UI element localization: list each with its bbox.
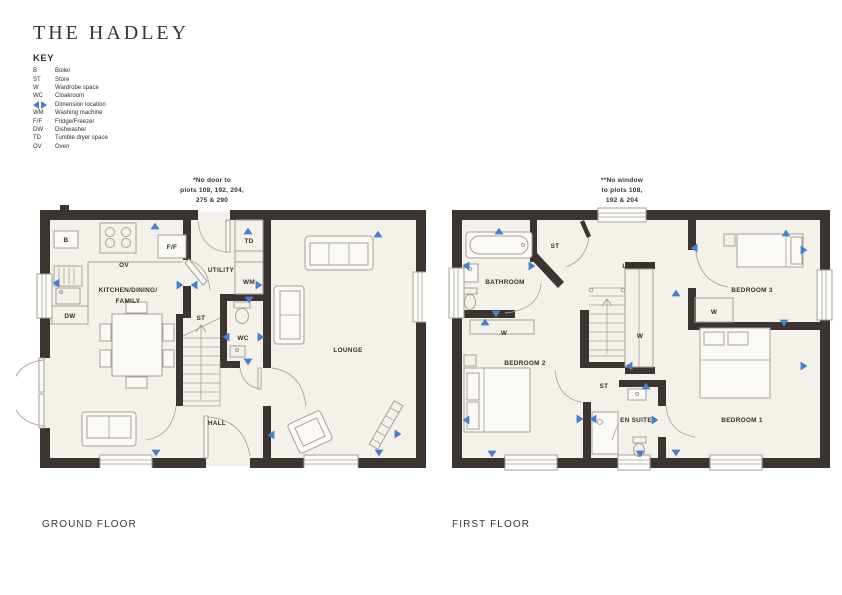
key-label: Washing machine bbox=[55, 110, 102, 116]
room-label-store: ST bbox=[197, 315, 206, 322]
key-abbr: WC bbox=[33, 93, 55, 99]
flue-stub bbox=[60, 205, 69, 210]
dimension-arrows-icon bbox=[33, 101, 55, 109]
key-abbr: OV bbox=[33, 144, 55, 150]
first-floor-plan: BATHROOM LANDING BEDROOM 3 BEDROOM 2 BED… bbox=[446, 204, 836, 474]
key-row: WCCloakroom bbox=[33, 92, 108, 100]
window bbox=[413, 272, 426, 322]
bedroom1-furniture bbox=[700, 328, 770, 398]
key-label: Oven bbox=[55, 144, 69, 150]
key-label: Dimension location bbox=[55, 102, 106, 108]
window bbox=[618, 455, 650, 470]
room-label-store-top: ST bbox=[551, 243, 560, 250]
key-label: Tumble dryer space bbox=[55, 135, 108, 141]
single-bed bbox=[737, 234, 803, 267]
room-label-bedroom1: BEDROOM 1 bbox=[721, 417, 763, 424]
key-heading: KEY bbox=[33, 53, 108, 64]
key-legend: KEY BBoiler STStore WWardrobe space WCCl… bbox=[33, 53, 108, 151]
room-label-kitchen: KITCHEN/DINING/ bbox=[99, 287, 158, 294]
key-row: Dimension location bbox=[33, 101, 108, 109]
floorplan-page: { "page": { "title": "THE HADLEY" }, "ke… bbox=[0, 0, 842, 595]
double-bed bbox=[464, 368, 530, 432]
room-label-bedroom3: BEDROOM 3 bbox=[731, 287, 773, 294]
key-label: Boiler bbox=[55, 68, 70, 74]
sofa-two-seat bbox=[274, 286, 304, 344]
label-tumble-dryer: TD bbox=[244, 238, 253, 245]
room-label-wc: WC bbox=[237, 335, 248, 342]
first-floor-note: **No window to plots 108, 192 & 204 bbox=[557, 176, 687, 206]
window bbox=[710, 455, 762, 470]
key-row: WWardrobe space bbox=[33, 84, 108, 92]
label-oven: OV bbox=[119, 262, 129, 269]
key-row: WMWashing machine bbox=[33, 109, 108, 117]
key-row: BBoiler bbox=[33, 67, 108, 75]
label-wardrobe-bed2: W bbox=[501, 330, 508, 337]
room-label-utility: UTILITY bbox=[208, 267, 235, 274]
key-label: Fridge/Freezer bbox=[55, 119, 94, 125]
key-label: Cloakroom bbox=[55, 93, 84, 99]
key-row: DWDishwasher bbox=[33, 126, 108, 134]
key-row: F/FFridge/Freezer bbox=[33, 117, 108, 125]
key-abbr: DW bbox=[33, 127, 55, 133]
window bbox=[817, 270, 832, 320]
key-abbr: B bbox=[33, 68, 55, 74]
room-label-hall: HALL bbox=[208, 420, 226, 427]
window bbox=[449, 268, 464, 318]
room-label-bathroom: BATHROOM bbox=[485, 279, 525, 286]
sofa-three-seat bbox=[305, 236, 373, 270]
window bbox=[505, 455, 557, 470]
label-fridge-freezer: F/F bbox=[167, 244, 177, 251]
key-row: TDTumble dryer space bbox=[33, 134, 108, 142]
label-wardrobe-center: W bbox=[637, 333, 644, 340]
room-label-landing: LANDING bbox=[622, 263, 653, 270]
window bbox=[598, 208, 646, 222]
bath bbox=[466, 232, 532, 258]
label-boiler: B bbox=[64, 237, 69, 244]
key-abbr: WM bbox=[33, 110, 55, 116]
room-label-lounge: LOUNGE bbox=[333, 347, 363, 354]
window bbox=[304, 455, 358, 468]
room-label-ensuite: EN SUITE bbox=[620, 417, 652, 424]
label-washing-machine: WM bbox=[243, 279, 255, 286]
key-row: OVOven bbox=[33, 143, 108, 151]
key-label: Dishwasher bbox=[55, 127, 86, 133]
family-sofa bbox=[82, 412, 136, 446]
label-wardrobe-bed3: W bbox=[711, 309, 718, 316]
ground-floor-title: GROUND FLOOR bbox=[42, 519, 137, 530]
basin bbox=[628, 389, 646, 400]
key-abbr: W bbox=[33, 85, 55, 91]
key-row: STStore bbox=[33, 75, 108, 83]
page-title: THE HADLEY bbox=[33, 22, 189, 45]
key-abbr: F/F bbox=[33, 119, 55, 125]
room-label-bedroom2: BEDROOM 2 bbox=[504, 360, 546, 367]
key-abbr: ST bbox=[33, 77, 55, 83]
first-floor-title: FIRST FLOOR bbox=[452, 519, 530, 530]
double-bed bbox=[700, 328, 770, 398]
label-dishwasher: DW bbox=[64, 313, 76, 320]
room-label-store-mid: ST bbox=[600, 383, 609, 390]
room-label-kitchen2: FAMILY bbox=[116, 298, 141, 305]
key-label: Store bbox=[55, 77, 69, 83]
key-abbr: TD bbox=[33, 135, 55, 141]
ground-floor-note: *No door to plots 108, 192, 204, 275 & 2… bbox=[147, 176, 277, 206]
ground-floor-plan: KITCHEN/DINING/ FAMILY UTILITY ST WC LOU… bbox=[16, 204, 426, 468]
french-doors bbox=[16, 358, 44, 428]
window bbox=[37, 274, 52, 318]
window bbox=[100, 455, 152, 468]
key-label: Wardrobe space bbox=[55, 85, 99, 91]
